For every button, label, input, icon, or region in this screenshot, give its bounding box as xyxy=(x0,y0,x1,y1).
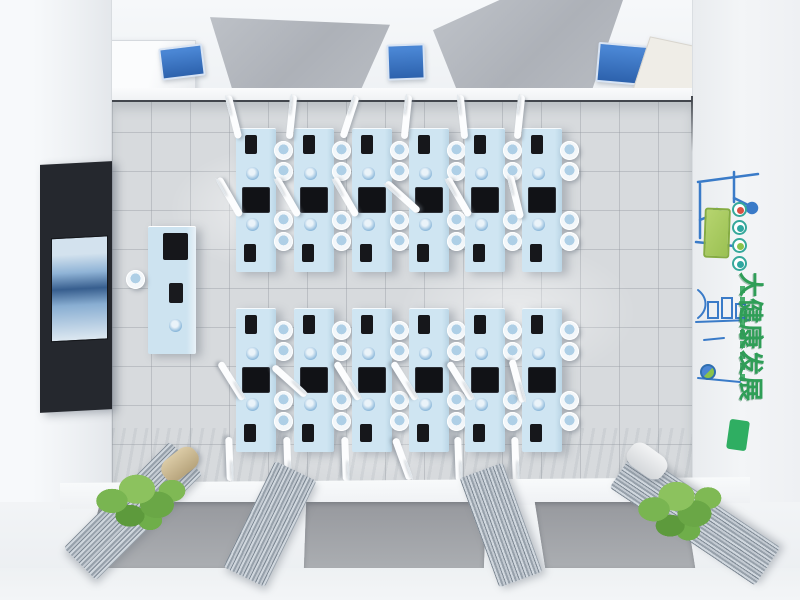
top-wall xyxy=(108,88,692,102)
mural-green-board xyxy=(703,208,731,259)
hand-sink xyxy=(304,347,317,360)
hand-sink xyxy=(475,347,488,360)
stool xyxy=(126,270,145,289)
workbench xyxy=(409,308,449,452)
monitor-screen xyxy=(358,367,386,393)
stool xyxy=(390,342,409,361)
monitor-screen xyxy=(300,187,328,213)
workbench xyxy=(352,128,392,272)
stool xyxy=(332,412,351,431)
stool xyxy=(332,342,351,361)
hand-sink xyxy=(169,319,182,332)
workbench xyxy=(522,308,562,452)
mural-badge xyxy=(732,202,747,217)
hand-sink xyxy=(304,218,317,231)
stool xyxy=(560,211,579,230)
phantom-head-slot xyxy=(474,135,486,154)
dental-delivery-arm xyxy=(511,437,520,481)
phantom-head-slot xyxy=(245,135,257,154)
phantom-head-slot xyxy=(244,244,256,262)
hand-sink xyxy=(362,398,375,411)
wall-poster xyxy=(158,43,206,80)
stool xyxy=(447,342,466,361)
mural-badge xyxy=(732,220,747,235)
stool xyxy=(560,162,579,181)
hand-sink xyxy=(246,347,259,360)
phantom-head-slot xyxy=(360,424,372,442)
phantom-head-slot xyxy=(473,424,485,442)
stool xyxy=(503,412,522,431)
phantom-head-slot xyxy=(303,135,315,154)
stool xyxy=(274,321,293,340)
hand-sink xyxy=(532,218,545,231)
hand-sink xyxy=(362,218,375,231)
mural-badge xyxy=(732,238,747,253)
hand-sink xyxy=(419,347,432,360)
stool xyxy=(390,232,409,251)
mural-badge xyxy=(732,256,747,271)
stool xyxy=(560,412,579,431)
phantom-head-slot xyxy=(361,135,373,154)
hand-sink xyxy=(419,398,432,411)
stool xyxy=(332,321,351,340)
stool xyxy=(274,391,293,410)
phantom-head-slot xyxy=(244,424,256,442)
hand-sink xyxy=(246,398,259,411)
phantom-head-slot xyxy=(474,315,486,334)
outer-bottom-wall xyxy=(0,568,800,600)
workbench xyxy=(352,308,392,452)
instructor-monitor xyxy=(163,233,188,260)
hand-sink xyxy=(362,167,375,180)
workbench xyxy=(236,308,276,452)
phantom-head-slot xyxy=(417,424,429,442)
wall-tv xyxy=(40,161,112,413)
monitor-screen xyxy=(242,367,270,393)
stool xyxy=(447,232,466,251)
instructor-station xyxy=(148,226,196,354)
stool xyxy=(447,211,466,230)
phantom-head-slot xyxy=(530,424,542,442)
stool xyxy=(274,141,293,160)
hand-sink xyxy=(304,167,317,180)
phantom-head-slot xyxy=(361,315,373,334)
hand-sink xyxy=(475,218,488,231)
hand-sink xyxy=(246,167,259,180)
monitor-screen xyxy=(358,187,386,213)
hand-sink xyxy=(419,167,432,180)
hand-sink xyxy=(304,398,317,411)
stool xyxy=(560,342,579,361)
phantom-head-slot xyxy=(302,244,314,262)
stool xyxy=(390,412,409,431)
mural-headline: 大健康发展 xyxy=(740,272,770,406)
monitor-screen xyxy=(471,367,499,393)
training-room-render: 大健康发展 xyxy=(0,0,800,600)
stool xyxy=(560,391,579,410)
stool xyxy=(447,141,466,160)
phantom-head-slot xyxy=(360,244,372,262)
phantom-head-slot xyxy=(530,244,542,262)
monitor-screen xyxy=(471,187,499,213)
stool xyxy=(447,321,466,340)
workbench xyxy=(236,128,276,272)
stool xyxy=(560,232,579,251)
window-pane xyxy=(304,502,486,570)
hand-sink xyxy=(532,347,545,360)
dental-delivery-arm xyxy=(341,437,350,481)
hand-sink xyxy=(419,218,432,231)
stool xyxy=(390,321,409,340)
stool xyxy=(332,211,351,230)
workbench xyxy=(409,128,449,272)
stool xyxy=(447,391,466,410)
hand-sink xyxy=(246,218,259,231)
hand-sink xyxy=(475,398,488,411)
stool xyxy=(390,391,409,410)
workbench xyxy=(294,308,334,452)
globe-icon xyxy=(700,364,716,380)
dental-delivery-arm xyxy=(454,437,463,481)
stool xyxy=(560,141,579,160)
instrument-slot xyxy=(169,283,183,303)
green-sign-icon xyxy=(726,419,750,451)
stool xyxy=(390,162,409,181)
hand-sink xyxy=(532,398,545,411)
phantom-head-slot xyxy=(303,315,315,334)
phantom-head-slot xyxy=(417,244,429,262)
stool xyxy=(332,141,351,160)
stool xyxy=(447,412,466,431)
hand-sink xyxy=(362,347,375,360)
phantom-head-slot xyxy=(531,315,543,334)
workbench xyxy=(294,128,334,272)
stool xyxy=(503,232,522,251)
stool xyxy=(503,321,522,340)
stool xyxy=(560,321,579,340)
stool xyxy=(274,342,293,361)
stool xyxy=(503,141,522,160)
phantom-head-slot xyxy=(418,135,430,154)
stool xyxy=(503,342,522,361)
stool xyxy=(274,211,293,230)
stool xyxy=(390,141,409,160)
monitor-screen xyxy=(242,187,270,213)
monitor-screen xyxy=(528,187,556,213)
phantom-head-slot xyxy=(473,244,485,262)
stool xyxy=(274,412,293,431)
stool xyxy=(390,211,409,230)
stool xyxy=(332,391,351,410)
dental-delivery-arm xyxy=(225,437,234,481)
tv-screen xyxy=(51,235,108,342)
wall-poster xyxy=(386,43,425,80)
wall-corner-edge xyxy=(691,96,693,152)
stool xyxy=(274,232,293,251)
workbench xyxy=(465,308,505,452)
wall-mural: 大健康发展 xyxy=(694,168,800,468)
phantom-head-slot xyxy=(418,315,430,334)
potted-plant xyxy=(92,458,192,536)
stool xyxy=(332,232,351,251)
potted-plant xyxy=(636,462,726,548)
monitor-screen xyxy=(528,367,556,393)
phantom-head-slot xyxy=(245,315,257,334)
workbench xyxy=(465,128,505,272)
workbench xyxy=(522,128,562,272)
hand-sink xyxy=(532,167,545,180)
phantom-head-slot xyxy=(531,135,543,154)
monitor-screen xyxy=(415,367,443,393)
hand-sink xyxy=(475,167,488,180)
phantom-head-slot xyxy=(302,424,314,442)
